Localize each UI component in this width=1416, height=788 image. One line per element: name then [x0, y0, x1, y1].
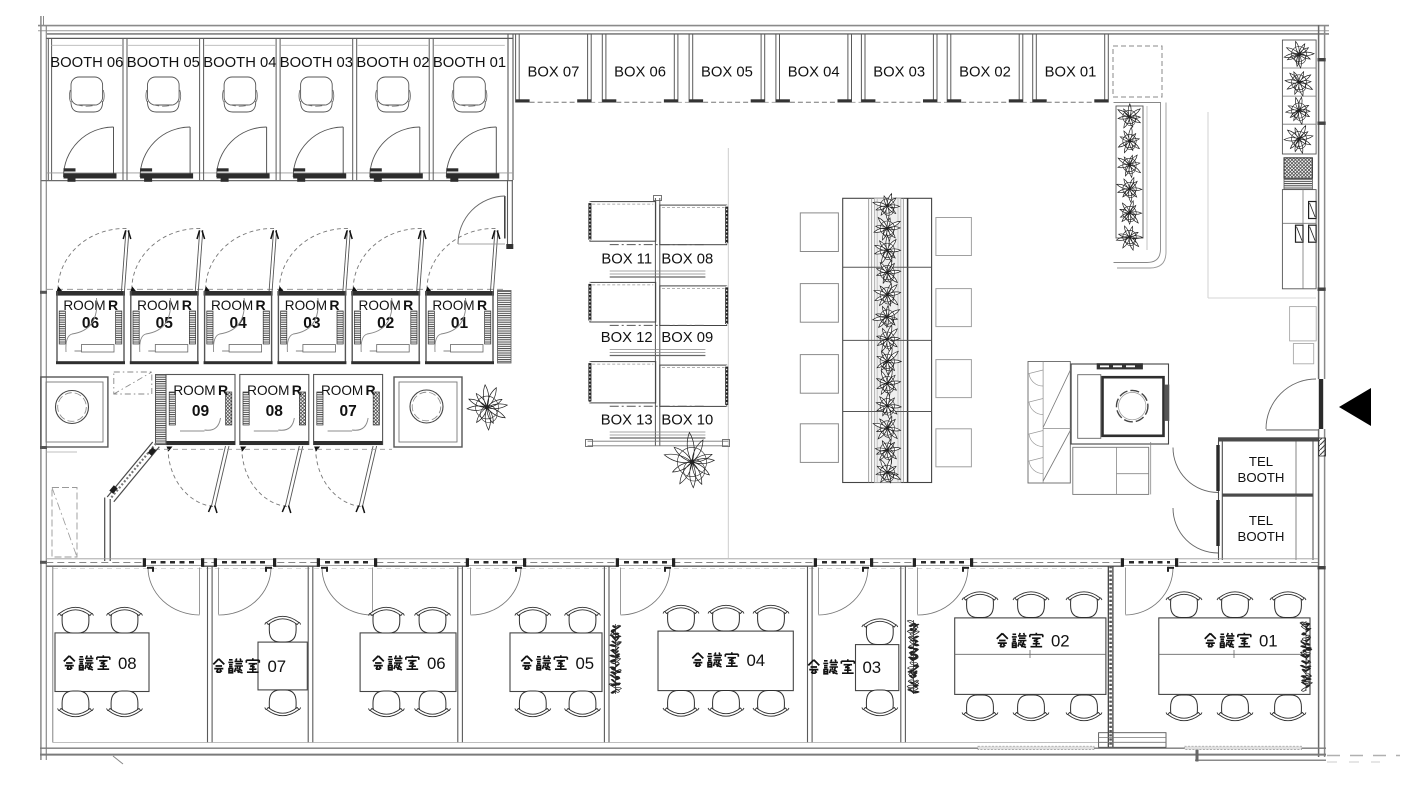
svg-text:ROOM: ROOM: [137, 298, 179, 313]
svg-text:BOOTH 01: BOOTH 01: [433, 55, 506, 71]
svg-text:BOX 03: BOX 03: [873, 65, 925, 81]
svg-text:03: 03: [862, 658, 881, 677]
svg-text:09: 09: [192, 403, 210, 420]
svg-text:BOOTH 05: BOOTH 05: [127, 55, 200, 71]
svg-text:08: 08: [266, 403, 284, 420]
svg-text:R: R: [329, 297, 339, 313]
svg-text:ROOM: ROOM: [285, 298, 327, 313]
svg-text:BOOTH 03: BOOTH 03: [280, 55, 353, 71]
svg-text:BOOTH 04: BOOTH 04: [203, 55, 276, 71]
svg-text:BOX 01: BOX 01: [1045, 65, 1097, 81]
svg-text:ROOM: ROOM: [211, 298, 253, 313]
svg-text:ROOM: ROOM: [63, 298, 105, 313]
svg-text:BOX 07: BOX 07: [527, 65, 579, 81]
svg-text:BOX 08: BOX 08: [661, 252, 713, 268]
svg-text:07: 07: [267, 657, 286, 676]
svg-text:TEL: TEL: [1249, 513, 1273, 528]
svg-text:R: R: [403, 297, 413, 313]
svg-text:BOX 05: BOX 05: [701, 65, 753, 81]
svg-text:BOX 10: BOX 10: [661, 413, 713, 429]
svg-text:ROOM: ROOM: [173, 383, 215, 398]
svg-text:02: 02: [1051, 631, 1070, 650]
svg-text:BOOTH 02: BOOTH 02: [356, 55, 429, 71]
svg-text:BOX 09: BOX 09: [661, 330, 713, 346]
svg-text:ROOM: ROOM: [432, 298, 474, 313]
svg-text:BOX 02: BOX 02: [959, 65, 1011, 81]
svg-text:R: R: [477, 297, 487, 313]
svg-text:TEL: TEL: [1249, 454, 1273, 469]
svg-text:ROOM: ROOM: [359, 298, 401, 313]
svg-text:01: 01: [1259, 631, 1278, 650]
svg-text:05: 05: [575, 654, 594, 673]
svg-text:07: 07: [339, 403, 356, 420]
svg-text:BOX 06: BOX 06: [614, 65, 666, 81]
svg-text:BOOTH: BOOTH: [1238, 529, 1285, 544]
svg-text:BOX 11: BOX 11: [601, 252, 652, 268]
svg-text:04: 04: [746, 651, 765, 670]
svg-text:BOX 04: BOX 04: [788, 65, 840, 81]
svg-text:ROOM: ROOM: [321, 383, 363, 398]
svg-text:BOOTH: BOOTH: [1238, 470, 1285, 485]
svg-text:BOOTH 06: BOOTH 06: [50, 55, 123, 71]
svg-text:R: R: [182, 297, 192, 313]
svg-text:BOX 13: BOX 13: [601, 413, 653, 429]
svg-text:R: R: [108, 297, 118, 313]
svg-text:06: 06: [427, 654, 446, 673]
svg-text:08: 08: [118, 654, 137, 673]
svg-text:BOX 12: BOX 12: [601, 330, 653, 346]
svg-text:ROOM: ROOM: [247, 383, 289, 398]
svg-text:R: R: [256, 297, 266, 313]
